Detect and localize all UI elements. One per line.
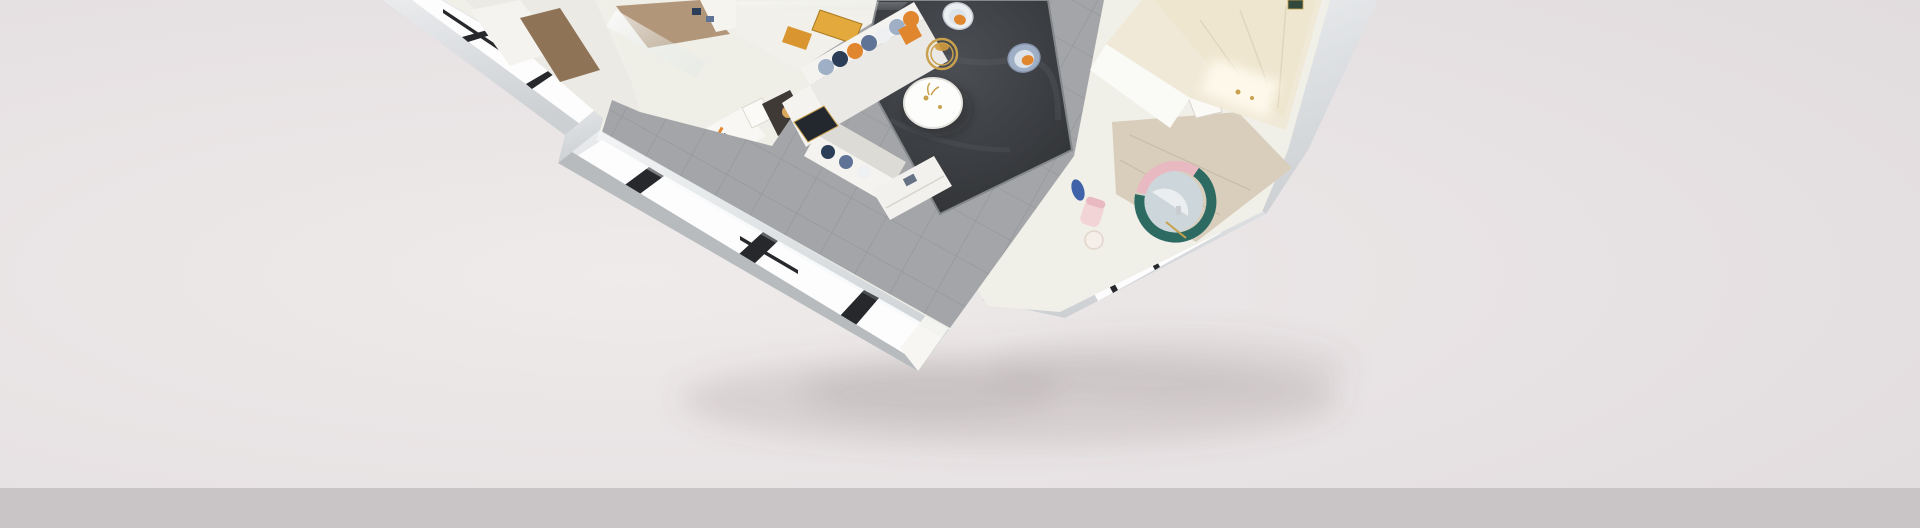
apartment-render	[0, 0, 1920, 528]
side-table	[1085, 231, 1103, 249]
bottom-band	[0, 488, 1920, 528]
hero-render-section	[0, 0, 1920, 528]
decor-box	[1288, 0, 1303, 9]
round-crib-rug	[1139, 166, 1211, 238]
round-coffee-table	[904, 78, 962, 128]
